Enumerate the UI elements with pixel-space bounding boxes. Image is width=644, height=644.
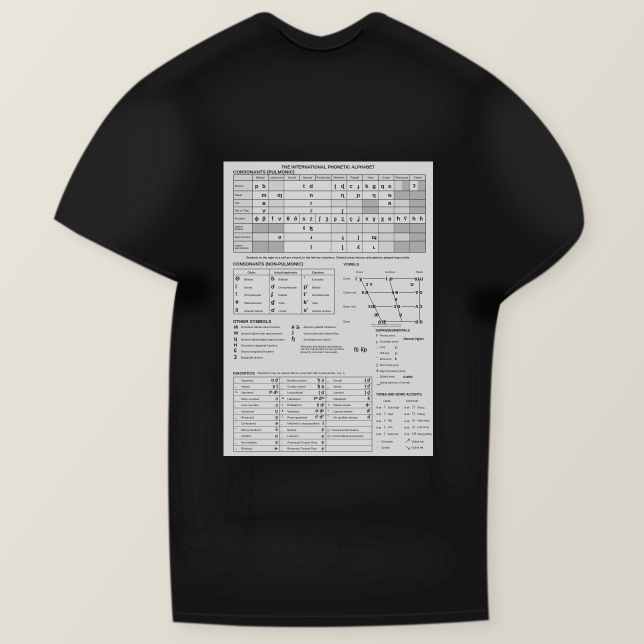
svg-text:Voiced implosives: Voiced implosives xyxy=(274,270,298,274)
svg-text:TONES AND WORD ACCENTS: TONES AND WORD ACCENTS xyxy=(376,393,422,397)
svg-text:DIACRITICS: DIACRITICS xyxy=(233,371,255,375)
svg-text:Retroflex: Retroflex xyxy=(334,176,345,180)
svg-text:m: m xyxy=(262,193,267,199)
svg-text:Retracted: Retracted xyxy=(241,416,254,420)
svg-text:Fricative: Fricative xyxy=(235,217,246,221)
svg-text:Voiced epiglottal fricative: Voiced epiglottal fricative xyxy=(241,349,274,353)
svg-text:ē or: ē or xyxy=(377,419,382,423)
svg-text:d: d xyxy=(309,184,313,190)
svg-text:f: f xyxy=(272,217,274,223)
svg-text:sʼ: sʼ xyxy=(304,308,309,314)
svg-text:Pharyngealized: Pharyngealized xyxy=(287,416,307,420)
svg-text:Bilabial: Bilabial xyxy=(256,176,265,180)
svg-text:Voiced labial-velar approximan: Voiced labial-velar approximant xyxy=(241,331,283,335)
svg-text:Low rising: Low rising xyxy=(418,426,430,429)
svg-text:j: j xyxy=(357,235,360,241)
svg-text:β: β xyxy=(262,217,266,223)
svg-text:Close-mid: Close-mid xyxy=(343,291,356,295)
svg-text:Global rise: Global rise xyxy=(412,439,425,443)
svg-text:Central: Central xyxy=(385,270,395,274)
svg-text:Extra high: Extra high xyxy=(388,406,400,409)
svg-text:approximant: approximant xyxy=(235,247,249,250)
svg-text:Lowered: Lowered xyxy=(287,434,298,438)
svg-text:ɠ: ɠ xyxy=(271,300,275,306)
svg-text:tʷ dʷ: tʷ dʷ xyxy=(314,396,325,401)
svg-text:Front: Front xyxy=(356,270,363,274)
svg-text:ɴ: ɴ xyxy=(388,193,392,199)
svg-text:Clicks: Clicks xyxy=(248,270,256,274)
svg-text:Syllabic: Syllabic xyxy=(241,434,252,438)
svg-text:Upstep: Upstep xyxy=(382,446,391,450)
svg-text:é or: é or xyxy=(377,412,382,416)
svg-text:pʼ: pʼ xyxy=(304,284,310,290)
svg-text:ɒ: ɒ xyxy=(420,319,423,325)
svg-text:e᷈ or: e᷈ or xyxy=(404,432,409,436)
svg-text:h: h xyxy=(412,217,416,223)
svg-text:Rhoticity: Rhoticity xyxy=(241,447,253,451)
svg-text:Linking (absence of a break): Linking (absence of a break) xyxy=(380,382,410,385)
svg-text:Linguolabial: Linguolabial xyxy=(287,391,303,395)
svg-text:b: b xyxy=(262,184,266,190)
svg-text:Velarized or pharyngealized: Velarized or pharyngealized xyxy=(287,422,320,426)
svg-text:ɳ: ɳ xyxy=(341,193,345,199)
svg-text:t: t xyxy=(303,184,305,190)
svg-text:tʲ dʲ: tʲ dʲ xyxy=(317,402,324,407)
svg-text:Velar: Velar xyxy=(367,176,373,180)
svg-text:(Post)alveolar: (Post)alveolar xyxy=(244,293,261,297)
svg-text:Alveolar: Alveolar xyxy=(303,176,313,180)
svg-text:ð: ð xyxy=(294,216,298,223)
svg-text:b̤ a̤: b̤ a̤ xyxy=(318,377,325,382)
svg-text:Bilabial: Bilabial xyxy=(244,278,253,282)
svg-text:ɟ: ɟ xyxy=(357,184,359,190)
svg-text:ɹ: ɹ xyxy=(310,235,312,241)
svg-text:(ɹ̝ = voiced alveolar fricativ: (ɹ̝ = voiced alveolar fricative) xyxy=(327,429,358,432)
svg-text:Nasal release: Nasal release xyxy=(333,403,351,407)
svg-text:ě or: ě or xyxy=(405,406,410,410)
svg-text:ˌfoʊnəˈtɪʃən: ˌfoʊnəˈtɪʃən xyxy=(402,337,424,341)
svg-text:Lateral release: Lateral release xyxy=(333,409,353,413)
svg-text:ɚ: ɚ xyxy=(274,446,278,451)
svg-text:Extra low: Extra low xyxy=(388,433,398,436)
svg-text:Mid-centralized: Mid-centralized xyxy=(241,428,261,432)
svg-text:ts: ts xyxy=(354,348,359,354)
svg-text:eˑ: eˑ xyxy=(395,351,398,355)
svg-text:n̩: n̩ xyxy=(275,433,278,438)
svg-text:Global fall: Global fall xyxy=(412,446,424,450)
svg-text:Tap or Flap: Tap or Flap xyxy=(235,208,249,212)
svg-text:ə: ə xyxy=(394,297,397,303)
svg-text:Voiceless labial-velar fricati: Voiceless labial-velar fricative xyxy=(241,325,281,329)
svg-text:Voiceless epiglottal fricative: Voiceless epiglottal fricative xyxy=(241,343,278,347)
svg-text:OTHER SYMBOLS: OTHER SYMBOLS xyxy=(233,319,271,324)
svg-text:ɗ: ɗ xyxy=(271,284,275,290)
svg-text:Rising: Rising xyxy=(418,406,426,409)
svg-text:Syllable break: Syllable break xyxy=(380,376,396,379)
svg-text:Labialized: Labialized xyxy=(287,397,300,401)
svg-text:Alveolar fricative: Alveolar fricative xyxy=(312,309,332,313)
svg-text:e᷅ or: e᷅ or xyxy=(404,425,409,429)
svg-text:Uvular: Uvular xyxy=(279,309,287,313)
svg-text:Simultaneous ʃ and x: Simultaneous ʃ and x xyxy=(304,337,332,341)
svg-text:‖: ‖ xyxy=(377,369,379,373)
svg-text:Nasalized: Nasalized xyxy=(333,397,346,401)
svg-text:ɸ: ɸ xyxy=(255,217,259,223)
svg-text:tʰ dʰ: tʰ dʰ xyxy=(269,390,278,395)
svg-text:Long: Long xyxy=(380,346,386,349)
svg-text:t̼ d̼: t̼ d̼ xyxy=(318,390,324,395)
svg-text:ɧ: ɧ xyxy=(292,337,296,343)
svg-text:Less rounded: Less rounded xyxy=(241,403,259,407)
svg-text:Voiced: Voiced xyxy=(241,384,250,388)
svg-text:Voiceless: Voiceless xyxy=(241,378,254,382)
svg-text:ɵ: ɵ xyxy=(395,290,398,296)
svg-text:ɖ: ɖ xyxy=(341,184,345,190)
svg-text:Uvular: Uvular xyxy=(382,176,390,180)
svg-text:ɦ: ɦ xyxy=(420,217,424,223)
svg-text:ˑ: ˑ xyxy=(377,351,378,355)
svg-text:Voiced labial-palatal approxim: Voiced labial-palatal approximant xyxy=(241,337,285,341)
svg-text:Palatal: Palatal xyxy=(351,176,360,180)
svg-text:θ: θ xyxy=(287,217,290,223)
svg-text:c: c xyxy=(350,184,353,190)
svg-text:ɞ: ɞ xyxy=(397,304,400,310)
svg-text:Alveolo-palatal fricatives: Alveolo-palatal fricatives xyxy=(304,325,337,329)
svg-text:Palatoalveolar: Palatoalveolar xyxy=(244,301,262,305)
svg-text:z: z xyxy=(310,217,313,223)
svg-text:Labiodental: Labiodental xyxy=(270,177,283,180)
svg-text:LEVEL: LEVEL xyxy=(384,400,392,403)
svg-text:ç: ç xyxy=(350,217,353,223)
svg-text:Velar: Velar xyxy=(312,301,318,305)
svg-text:Dental/alveolar: Dental/alveolar xyxy=(312,293,329,297)
svg-text:Centralized: Centralized xyxy=(241,422,256,426)
svg-text:eː: eː xyxy=(395,345,398,349)
svg-text:Velar: Velar xyxy=(279,301,285,305)
svg-text:(β̞ = voiced bilabial approxim: (β̞ = voiced bilabial approximant) xyxy=(327,435,363,438)
svg-text:Low: Low xyxy=(388,426,393,429)
svg-text:Primary stress: Primary stress xyxy=(380,334,396,337)
svg-text:˨˦˨: ˨˦˨ xyxy=(412,432,417,436)
svg-text:ʛ: ʛ xyxy=(271,308,275,314)
svg-text:Extra-short: Extra-short xyxy=(380,358,392,361)
svg-text:Downstep: Downstep xyxy=(382,439,394,443)
svg-text:d̚: d̚ xyxy=(367,415,370,420)
svg-text:No audible release: No audible release xyxy=(333,416,357,420)
svg-text:Secondary stress: Secondary stress xyxy=(380,340,399,343)
svg-text:Bilabial: Bilabial xyxy=(279,278,288,282)
svg-text:Open: Open xyxy=(343,320,350,324)
svg-text:ǃ: ǃ xyxy=(235,292,237,298)
svg-text:y: y xyxy=(359,276,362,282)
svg-text:è or: è or xyxy=(377,425,382,429)
svg-text:More rounded: More rounded xyxy=(241,397,259,401)
svg-text:Major (intonation) group: Major (intonation) group xyxy=(380,370,406,373)
svg-text:Advanced: Advanced xyxy=(241,409,254,413)
svg-text:|: | xyxy=(377,363,378,367)
svg-text:œ: œ xyxy=(371,304,376,310)
svg-text:ʘ: ʘ xyxy=(235,277,240,283)
svg-text:ȅ or: ȅ or xyxy=(377,432,382,436)
svg-text:Half-long: Half-long xyxy=(380,352,390,355)
svg-text:ê or: ê or xyxy=(405,412,410,416)
svg-text:ǂ: ǂ xyxy=(235,300,239,306)
svg-text:Advanced Tongue Root: Advanced Tongue Root xyxy=(287,440,317,444)
svg-text:ʒ: ʒ xyxy=(325,217,328,223)
svg-text:Dental/alveolar: Dental/alveolar xyxy=(279,285,298,289)
svg-text:tˤ dˤ: tˤ dˤ xyxy=(315,415,324,420)
svg-text:joined by a tie bar if necessa: joined by a tie bar if necessary. xyxy=(300,350,339,354)
svg-text:Trill: Trill xyxy=(235,201,240,205)
svg-text:Raised: Raised xyxy=(287,428,296,432)
svg-text:ɹi.ækt: ɹi.ækt xyxy=(403,375,413,379)
svg-text:ɪ: ɪ xyxy=(366,282,368,288)
svg-text:Retracted Tongue Root: Retracted Tongue Root xyxy=(287,447,317,451)
svg-text:.: . xyxy=(377,375,378,379)
svg-text:b̰ a̰: b̰ a̰ xyxy=(318,384,325,389)
svg-text:Ejectives: Ejectives xyxy=(312,270,324,274)
svg-text:fricative: fricative xyxy=(235,228,244,231)
svg-text:o: o xyxy=(419,290,422,296)
svg-text:ʕ: ʕ xyxy=(404,217,407,223)
svg-text:Palatalized: Palatalized xyxy=(287,403,302,407)
svg-text:Mid: Mid xyxy=(388,420,393,423)
svg-text:ː: ː xyxy=(377,345,378,349)
svg-text:s: s xyxy=(302,217,305,223)
svg-text:Dental: Dental xyxy=(244,285,252,289)
svg-text:ɐ: ɐ xyxy=(398,313,402,319)
svg-text:ɯ: ɯ xyxy=(414,276,419,282)
svg-text:ʏ: ʏ xyxy=(370,282,373,288)
svg-text:Creaky voiced: Creaky voiced xyxy=(287,384,306,388)
svg-text:ɜ: ɜ xyxy=(394,304,397,310)
svg-text:Diacritics may be placed above: Diacritics may be placed above a symbol … xyxy=(258,370,345,375)
svg-text:Apical: Apical xyxy=(333,384,341,388)
svg-text:Breathy voiced: Breathy voiced xyxy=(287,378,307,382)
svg-text:Symbols to the right in a cell: Symbols to the right in a cell are voice… xyxy=(246,255,410,259)
svg-text:ǁ: ǁ xyxy=(235,308,238,314)
svg-text:Glottal: Glottal xyxy=(414,176,422,180)
svg-text:ɑ: ɑ xyxy=(415,319,418,325)
svg-text:dⁿ: dⁿ xyxy=(366,402,371,407)
svg-text:kʼ: kʼ xyxy=(304,300,309,306)
svg-text:Close: Close xyxy=(343,277,351,281)
svg-text:u̟: u̟ xyxy=(275,409,278,414)
svg-text:Velarized: Velarized xyxy=(287,409,299,413)
svg-text:ɲ: ɲ xyxy=(356,193,361,199)
svg-text:dˡ: dˡ xyxy=(367,409,371,414)
svg-text:ĕ: ĕ xyxy=(395,357,397,361)
svg-text:t̻ d̻: t̻ d̻ xyxy=(365,390,371,395)
svg-text:ʋ: ʋ xyxy=(278,235,281,241)
svg-text:ʌ: ʌ xyxy=(415,304,418,310)
svg-text:ʔ: ʔ xyxy=(412,184,415,190)
svg-text:n̥ d̥: n̥ d̥ xyxy=(271,377,278,382)
svg-text:Epiglottal plosive: Epiglottal plosive xyxy=(241,355,264,359)
svg-text:Minor (foot) group: Minor (foot) group xyxy=(380,364,400,367)
svg-text:tʼ: tʼ xyxy=(304,292,308,298)
svg-text:s̬ t̬: s̬ t̬ xyxy=(273,384,279,389)
svg-text:High: High xyxy=(388,413,394,416)
svg-text:ɔ: ɔ xyxy=(420,304,423,310)
svg-text:Postalveolar: Postalveolar xyxy=(317,177,331,180)
svg-text:ɓ: ɓ xyxy=(271,277,275,283)
svg-text:e̋ or: e̋ or xyxy=(376,405,381,409)
svg-text:Alveolar lateral: Alveolar lateral xyxy=(244,309,263,313)
svg-text:æ: æ xyxy=(374,313,379,319)
svg-text:n: n xyxy=(309,193,313,199)
svg-text:Aspirated: Aspirated xyxy=(241,391,254,395)
svg-text:ʡ: ʡ xyxy=(234,355,237,361)
svg-text:ɮ: ɮ xyxy=(309,226,313,232)
svg-text:ħ: ħ xyxy=(397,217,401,223)
svg-text:Nasal: Nasal xyxy=(235,193,243,197)
svg-text:Falling: Falling xyxy=(418,413,426,416)
svg-text:p: p xyxy=(255,184,259,190)
svg-text:Voiced alveolar lateral flap: Voiced alveolar lateral flap xyxy=(304,331,339,335)
svg-text:CONSONANTS (PULMONIC): CONSONANTS (PULMONIC) xyxy=(233,170,295,175)
svg-text:to the right represents a roun: to the right represents a rounded vowel. xyxy=(372,325,402,328)
svg-text:kp: kp xyxy=(361,348,368,354)
svg-text:CONTOUR: CONTOUR xyxy=(406,400,418,403)
svg-text:ʙ: ʙ xyxy=(262,201,266,207)
svg-text:e: e xyxy=(362,290,365,296)
svg-text:Dental: Dental xyxy=(288,176,296,180)
svg-text:Bilabial: Bilabial xyxy=(312,285,321,289)
svg-text:ŋ: ŋ xyxy=(372,193,376,199)
svg-text:tˠ dˠ: tˠ dˠ xyxy=(315,409,324,414)
svg-text:CONSONANTS (NON-PULMONIC): CONSONANTS (NON-PULMONIC) xyxy=(233,261,304,266)
svg-text:ʈ: ʈ xyxy=(334,184,336,190)
svg-text:ɰ: ɰ xyxy=(372,235,377,241)
svg-text:t̺ d̺: t̺ d̺ xyxy=(365,384,371,389)
svg-text:ɘ: ɘ xyxy=(391,290,394,296)
svg-text:ɱ: ɱ xyxy=(277,193,282,199)
svg-text:e᷄ or: e᷄ or xyxy=(404,418,409,422)
svg-text:u: u xyxy=(420,276,423,282)
svg-text:ʝ: ʝ xyxy=(357,217,360,223)
svg-text:Palatal: Palatal xyxy=(279,293,288,297)
svg-text:Rising-falling: Rising-falling xyxy=(418,433,433,436)
svg-text:Pharyngeal: Pharyngeal xyxy=(396,177,409,180)
svg-text:Dental: Dental xyxy=(333,378,342,382)
svg-text:Back: Back xyxy=(416,270,423,274)
svg-text:Laminal: Laminal xyxy=(333,391,343,395)
svg-text:SUPRASEGMENTALS: SUPRASEGMENTALS xyxy=(376,329,411,333)
svg-text:ɬ: ɬ xyxy=(303,226,305,232)
svg-text:Approximant: Approximant xyxy=(235,235,251,239)
svg-text:Non-syllabic: Non-syllabic xyxy=(241,440,257,444)
svg-text:VOWELS: VOWELS xyxy=(344,262,360,266)
svg-text:q: q xyxy=(381,184,385,190)
svg-text:Plosive: Plosive xyxy=(235,184,244,188)
svg-text:ʂ: ʂ xyxy=(334,217,337,223)
svg-text:Examples:: Examples: xyxy=(312,278,324,282)
svg-text:ɡ: ɡ xyxy=(372,184,376,190)
svg-text:Open-mid: Open-mid xyxy=(343,304,356,308)
svg-text:High rising: High rising xyxy=(418,420,430,423)
svg-text:THE INTERNATIONAL PHONETIC ALP: THE INTERNATIONAL PHONETIC ALPHABET xyxy=(282,165,376,170)
